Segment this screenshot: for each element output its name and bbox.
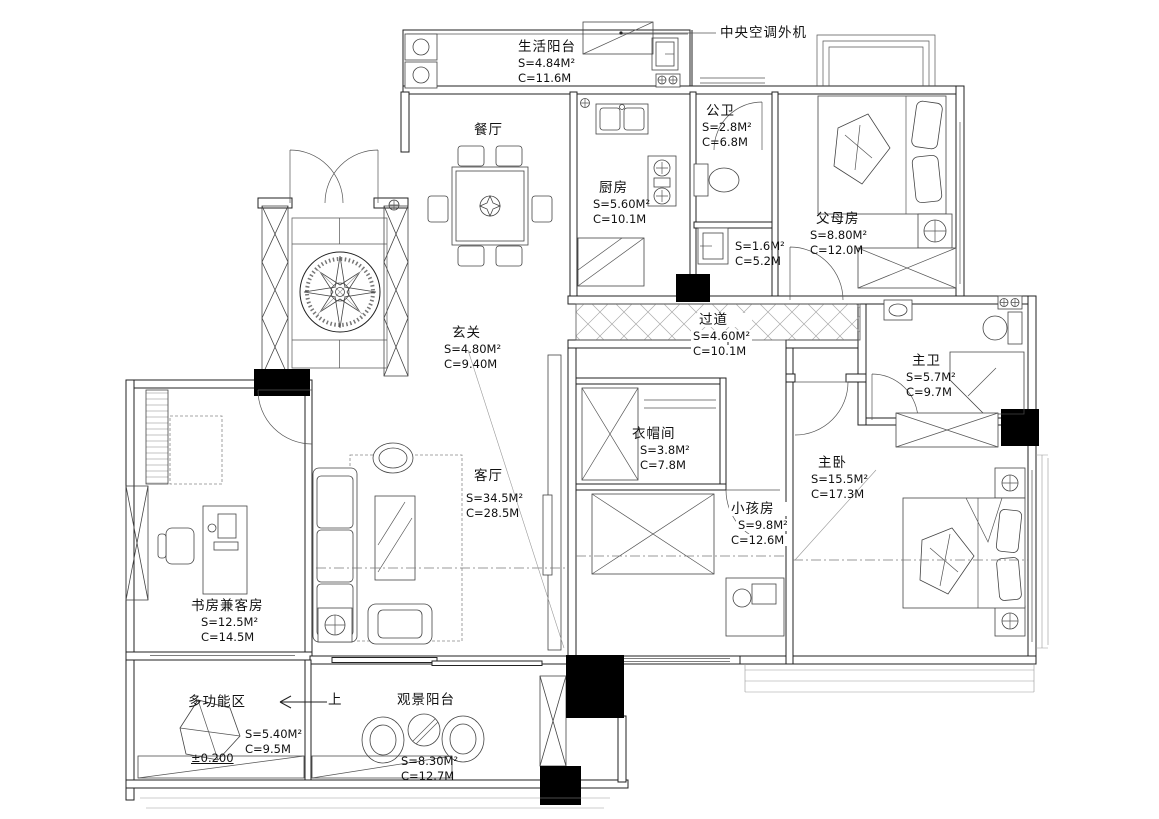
room-label-dining: 餐厅 — [474, 123, 503, 137]
room-area: S=2.8M² — [702, 121, 752, 133]
room-label-view-balcony-values: S=8.30M² C=12.7M — [401, 752, 458, 782]
room-area: S=4.60M² — [691, 330, 752, 342]
room-name: 衣帽间 — [632, 427, 690, 441]
room-perimeter: C=12.6M — [729, 534, 790, 546]
room-label-kitchen: 厨房 S=5.60M² C=10.1M — [593, 181, 650, 225]
room-area: S=5.60M² — [593, 198, 650, 210]
room-label-living: 客厅 S=34.5M² C=28.5M — [466, 469, 523, 519]
room-perimeter: C=7.8M — [640, 459, 690, 471]
room-name: 小孩房 — [729, 502, 790, 516]
compass-medallion — [292, 218, 387, 368]
room-perimeter: C=10.1M — [691, 345, 752, 357]
room-label-small-room: S=1.6M² C=5.2M — [735, 237, 785, 267]
room-label-multi-zone-name: 多功能区 — [188, 695, 246, 709]
room-perimeter: C=9.40M — [444, 358, 501, 370]
room-perimeter: C=12.7M — [401, 770, 458, 782]
room-perimeter: C=12.0M — [810, 244, 867, 256]
living-room-furniture — [313, 350, 566, 650]
room-name: 主卧 — [818, 456, 868, 470]
room-label-kids-room: 小孩房 S=9.8M² C=12.6M — [729, 502, 790, 546]
room-area: S=5.7M² — [906, 371, 956, 383]
room-area: S=1.6M² — [735, 240, 785, 252]
room-label-parents-room: 父母房 S=8.80M² C=12.0M — [810, 212, 867, 256]
room-name: 厨房 — [599, 181, 650, 195]
room-label-view-balcony-name: 观景阳台 — [397, 693, 455, 707]
dining-set — [428, 146, 552, 266]
room-label-entry-hall: 玄关 S=4.80M² C=9.40M — [444, 326, 501, 370]
room-perimeter: C=5.2M — [735, 255, 785, 267]
room-area: S=15.5M² — [811, 473, 868, 485]
room-area: S=4.84M² — [518, 57, 576, 69]
room-area: S=3.8M² — [640, 444, 690, 456]
floor-plan: 生活阳台 S=4.84M² C=11.6M 中央空调外机 公卫 S=2.8M² … — [0, 0, 1159, 819]
room-name: 父母房 — [816, 212, 867, 226]
room-label-closet: 衣帽间 S=3.8M² C=7.8M — [632, 427, 690, 471]
level-mark: ±0.200 — [191, 752, 234, 764]
room-perimeter: C=9.5M — [245, 743, 302, 755]
ac-unit-annotation: 中央空调外机 — [720, 26, 807, 40]
room-area: S=4.80M² — [444, 343, 501, 355]
room-label-life-balcony: 生活阳台 S=4.84M² C=11.6M — [518, 40, 576, 84]
parents-room-furniture — [818, 96, 956, 288]
room-label-study: 书房兼客房 S=12.5M² C=14.5M — [191, 599, 264, 643]
room-area: S=8.80M² — [810, 229, 867, 241]
room-perimeter: C=11.6M — [518, 72, 576, 84]
exterior-ledge — [745, 664, 1034, 692]
room-perimeter: C=14.5M — [201, 631, 264, 643]
room-label-multi-zone-values: S=5.40M² C=9.5M — [245, 725, 302, 755]
room-name: 书房兼客房 — [191, 599, 264, 613]
room-perimeter: C=6.8M — [702, 136, 752, 148]
room-name: 公卫 — [706, 104, 752, 118]
room-name: 主卫 — [912, 354, 956, 368]
room-area: S=9.8M² — [736, 519, 790, 531]
room-area: S=34.5M² — [466, 492, 523, 504]
up-annotation: 上 — [328, 693, 343, 707]
room-name: 客厅 — [474, 469, 523, 483]
room-area: S=5.40M² — [245, 728, 302, 740]
room-area: S=8.30M² — [401, 755, 458, 767]
room-perimeter: C=10.1M — [593, 213, 650, 225]
room-perimeter: C=9.7M — [906, 386, 956, 398]
public-bath-fixtures — [694, 164, 739, 196]
room-perimeter: C=17.3M — [811, 488, 868, 500]
room-area: S=12.5M² — [201, 616, 264, 628]
room-label-public-bath: 公卫 S=2.8M² C=6.8M — [702, 104, 752, 148]
room-name: 生活阳台 — [518, 40, 576, 54]
room-label-master-bath: 主卫 S=5.7M² C=9.7M — [906, 354, 956, 398]
room-name: 过道 — [697, 313, 752, 327]
room-label-corridor: 过道 S=4.60M² C=10.1M — [691, 313, 752, 357]
room-label-master-bed: 主卧 S=15.5M² C=17.3M — [811, 456, 868, 500]
room-name: 玄关 — [452, 326, 501, 340]
room-perimeter: C=28.5M — [466, 507, 523, 519]
floor-plan-drawing — [0, 0, 1159, 819]
master-bedroom-furniture — [793, 413, 1028, 636]
study-furniture — [146, 390, 247, 594]
